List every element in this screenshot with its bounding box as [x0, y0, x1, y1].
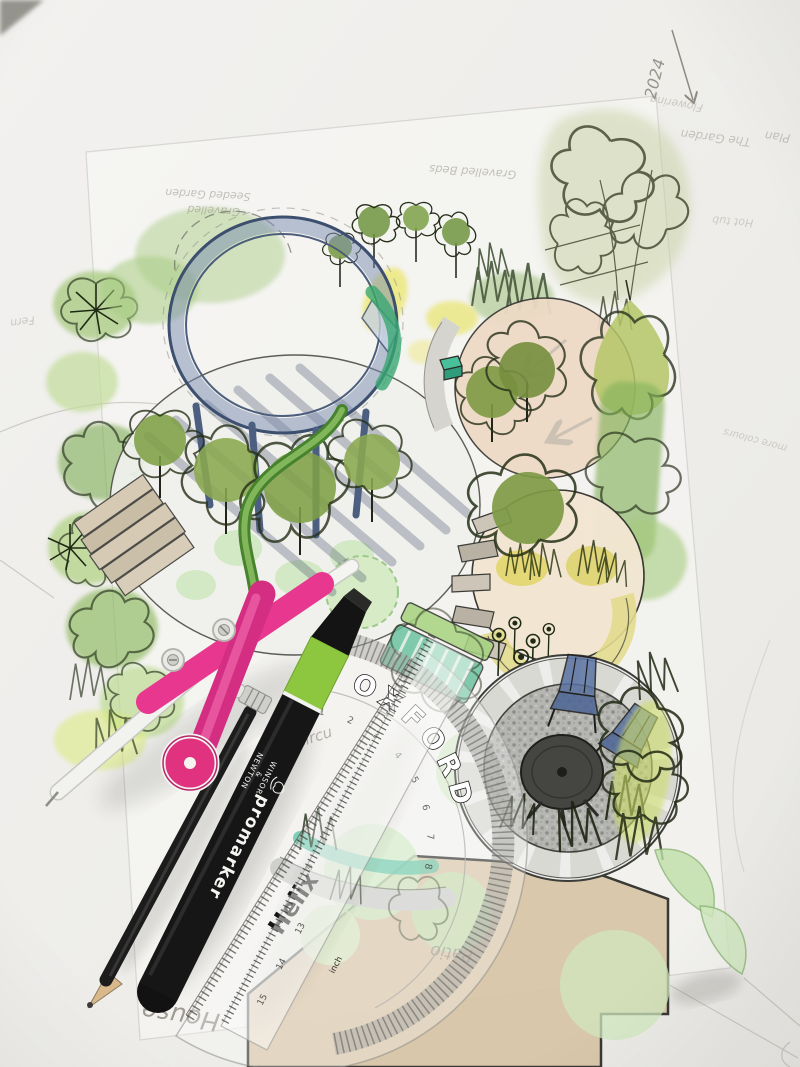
- photo-vignette: [0, 0, 800, 1067]
- garden-plan-photo: 2024 Flowering The Garden Plan Seeded Ga…: [0, 0, 800, 1067]
